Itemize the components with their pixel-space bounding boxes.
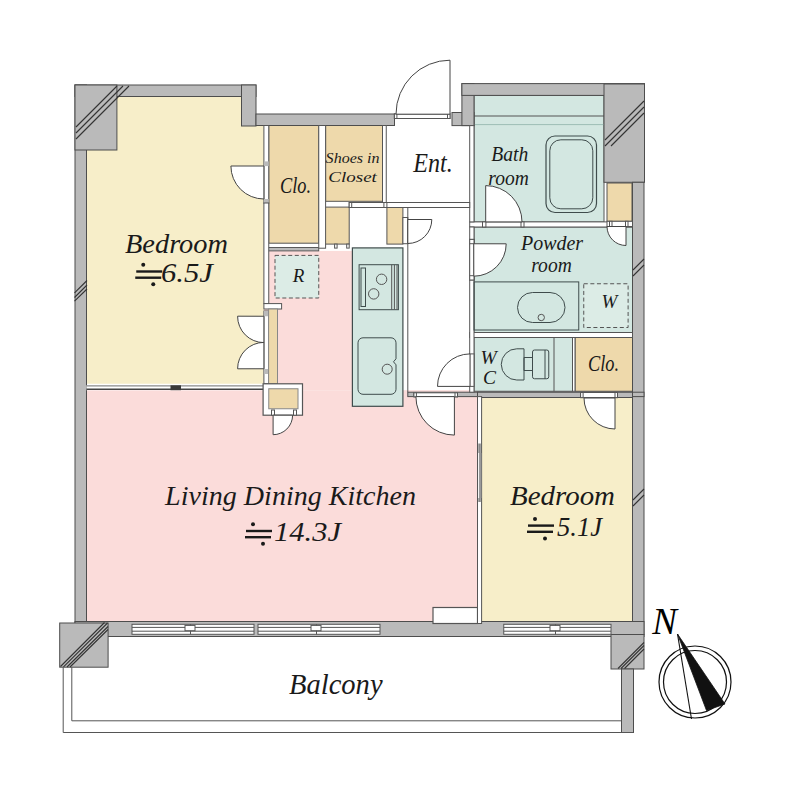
svg-text:room: room xyxy=(531,253,572,277)
svg-text:C: C xyxy=(483,367,497,388)
svg-text:Balcony: Balcony xyxy=(289,667,383,700)
svg-text:Shoes in: Shoes in xyxy=(326,149,380,166)
svg-text:room: room xyxy=(488,166,529,190)
svg-text:Bedroom: Bedroom xyxy=(125,228,228,259)
svg-text:Powder: Powder xyxy=(520,231,584,255)
svg-text:6.5J: 6.5J xyxy=(161,257,215,288)
svg-text:Bedroom: Bedroom xyxy=(510,480,615,511)
svg-text:Clo.: Clo. xyxy=(280,172,311,198)
svg-text:14.3J: 14.3J xyxy=(274,516,343,547)
svg-text:Living Dining Kitchen: Living Dining Kitchen xyxy=(164,480,416,511)
svg-text:5.1J: 5.1J xyxy=(557,511,603,542)
svg-text:W: W xyxy=(480,347,498,368)
svg-text:Ent.: Ent. xyxy=(412,148,452,178)
svg-text:Closet: Closet xyxy=(328,168,377,185)
svg-text:N: N xyxy=(651,601,679,642)
svg-text:Bath: Bath xyxy=(491,142,528,166)
svg-text:Clo.: Clo. xyxy=(588,350,619,376)
svg-text:R: R xyxy=(292,265,305,286)
svg-text:W: W xyxy=(601,291,619,312)
